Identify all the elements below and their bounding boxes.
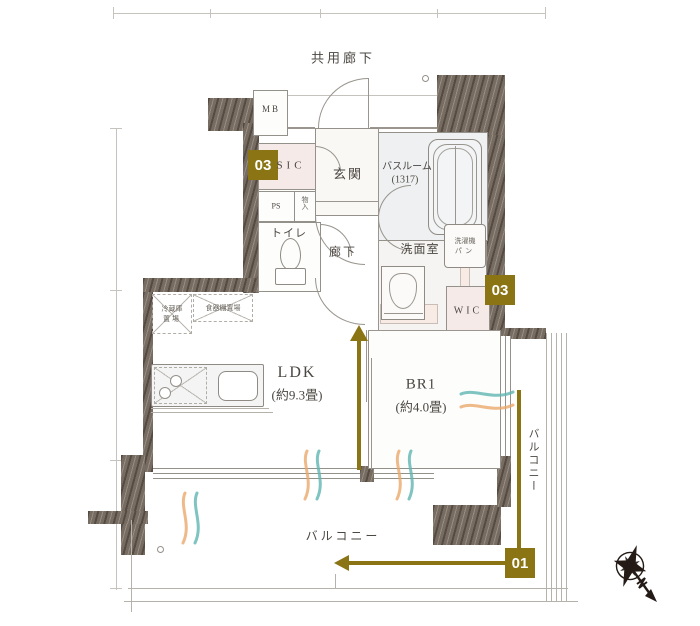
wall-segment bbox=[243, 123, 259, 293]
route-arrow-up-head bbox=[350, 325, 368, 341]
washer-pan: 洗濯機 パン bbox=[444, 224, 486, 268]
vanity-basin bbox=[389, 273, 417, 309]
fridge-space-label-1: 冷蔵庫 bbox=[162, 304, 183, 314]
bathtub-centerline bbox=[455, 146, 456, 230]
airflow-icon bbox=[178, 490, 204, 546]
route-arrow-up-shaft bbox=[357, 340, 361, 470]
balcony-rail-line bbox=[551, 333, 552, 601]
label-balcony-right: バルコニー bbox=[525, 428, 541, 493]
balcony-edge-line bbox=[128, 588, 568, 589]
dimension-tick bbox=[113, 7, 114, 19]
dimension-tick bbox=[110, 290, 122, 291]
label-common-corridor: 共用廊下 bbox=[311, 52, 375, 67]
balcony-rail-line bbox=[566, 333, 567, 601]
label-toilet: トイレ bbox=[271, 228, 307, 241]
label-entrance: 玄関 bbox=[333, 168, 363, 183]
route-arrow-left-head bbox=[334, 555, 349, 571]
washer-pan-label-2: パン bbox=[455, 246, 475, 256]
dimension-tick bbox=[545, 7, 546, 19]
sliding-door bbox=[371, 358, 372, 470]
dimension-tick bbox=[335, 574, 336, 588]
cupboard-space-box: 食器棚置場 bbox=[193, 294, 253, 322]
airflow-icon bbox=[392, 448, 418, 502]
badge-01-balcony[interactable]: 01 bbox=[505, 548, 535, 578]
dimension-tick bbox=[110, 128, 122, 129]
label-balcony-bottom: バルコニー bbox=[306, 530, 381, 544]
compass-icon bbox=[600, 538, 670, 610]
balcony-rail-line bbox=[561, 333, 562, 601]
label-ldk-size: (約9.3畳) bbox=[272, 389, 323, 404]
airflow-icon bbox=[300, 448, 326, 502]
dimension-line bbox=[113, 13, 545, 14]
counter-edge-line bbox=[151, 412, 273, 413]
airflow-icon bbox=[458, 386, 516, 418]
label-bathroom-size: (1317) bbox=[392, 174, 419, 186]
entrance-door-arc bbox=[318, 78, 368, 128]
wall-segment bbox=[143, 278, 259, 292]
dimension-tick bbox=[320, 9, 321, 18]
washer-pan-label-1: 洗濯機 bbox=[455, 236, 476, 246]
door-stopper bbox=[422, 75, 429, 82]
entrance-door-leaf bbox=[368, 78, 369, 129]
partition-line bbox=[368, 330, 497, 331]
label-ps: PS bbox=[272, 201, 281, 210]
wall-segment bbox=[121, 455, 145, 555]
ldk-window bbox=[153, 468, 360, 479]
vanity-sink bbox=[381, 266, 425, 320]
label-wic: WIC bbox=[454, 305, 482, 317]
wall-line bbox=[370, 127, 437, 129]
wall-segment bbox=[88, 511, 148, 524]
drain-marker bbox=[157, 546, 164, 553]
dimension-tick bbox=[110, 588, 122, 589]
floor-plan: 洗濯機 パン 冷蔵庫 置場 食器棚置場 03 03 01 bbox=[0, 0, 700, 626]
label-br1-size: (約4.0畳) bbox=[396, 401, 447, 416]
fridge-space-label-2: 置場 bbox=[163, 314, 181, 324]
route-arrow-left-shaft bbox=[348, 561, 505, 565]
entrance-step-line bbox=[316, 201, 378, 202]
dimension-tick bbox=[210, 9, 211, 18]
toilet-tank bbox=[275, 268, 306, 285]
badge-03-wic[interactable]: 03 bbox=[485, 275, 515, 305]
burner-icon bbox=[159, 387, 171, 399]
partition-line bbox=[378, 128, 379, 330]
wall-line bbox=[285, 127, 315, 129]
toilet-fixture bbox=[272, 238, 308, 288]
ldk-door-arc bbox=[315, 278, 365, 325]
label-ldk: LDK bbox=[278, 364, 317, 382]
label-storage: 物入 bbox=[300, 196, 310, 210]
label-hallway: 廊下 bbox=[329, 246, 357, 260]
balcony-edge-line bbox=[131, 520, 132, 612]
dimension-tick bbox=[437, 9, 438, 18]
wall-segment bbox=[437, 75, 505, 135]
wall-segment bbox=[433, 505, 501, 545]
vanity-counter-line bbox=[384, 313, 423, 314]
fridge-space-box: 冷蔵庫 置場 bbox=[152, 294, 192, 334]
label-washroom: 洗面室 bbox=[400, 243, 439, 257]
label-br1: BR1 bbox=[406, 376, 437, 393]
balcony-rail-line bbox=[556, 333, 557, 601]
cupboard-space-label: 食器棚置場 bbox=[206, 303, 241, 313]
toilet-bowl bbox=[280, 238, 301, 270]
route-line-vertical bbox=[517, 390, 521, 548]
label-bathroom: バスルーム bbox=[382, 161, 432, 173]
bathtub bbox=[428, 139, 482, 235]
burner-icon bbox=[170, 375, 182, 387]
balcony-rail-line bbox=[546, 333, 547, 601]
label-mb: MB bbox=[262, 104, 280, 114]
counter-edge-line bbox=[151, 408, 269, 409]
balcony-edge-line bbox=[124, 601, 578, 602]
kitchen-sink bbox=[218, 371, 258, 401]
badge-03-sic[interactable]: 03 bbox=[248, 150, 278, 180]
label-sic: SIC bbox=[276, 160, 305, 173]
